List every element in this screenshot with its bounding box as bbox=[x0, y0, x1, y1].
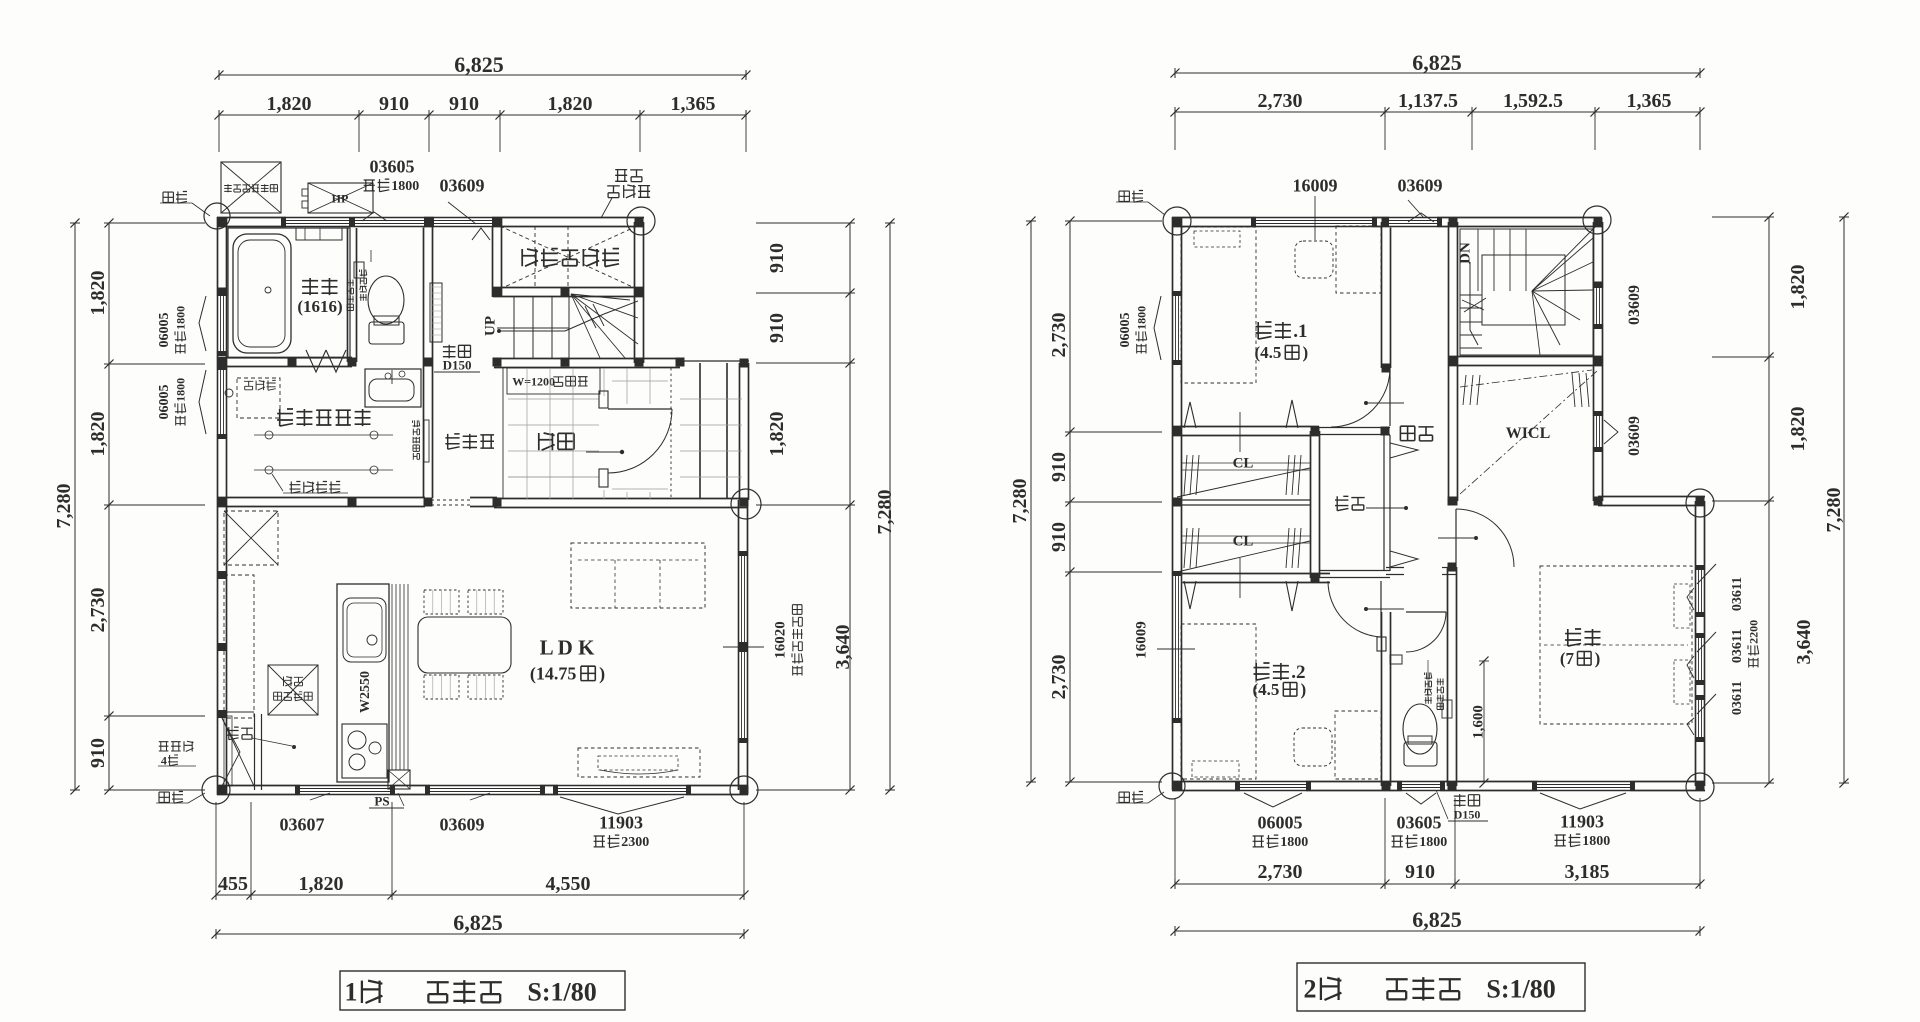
svg-text:1800: 1800 bbox=[1134, 306, 1148, 330]
svg-text:D150: D150 bbox=[443, 358, 472, 373]
svg-text:1800: 1800 bbox=[1419, 835, 1447, 850]
svg-text:(4.5: (4.5 bbox=[1252, 680, 1279, 699]
svg-text:1,820: 1,820 bbox=[87, 271, 109, 316]
svg-text:910: 910 bbox=[449, 93, 479, 115]
svg-text:DN: DN bbox=[1457, 242, 1473, 264]
svg-text:S:1/80: S:1/80 bbox=[1486, 974, 1555, 1003]
svg-text:03609: 03609 bbox=[440, 176, 485, 196]
svg-text:1,592.5: 1,592.5 bbox=[1503, 90, 1563, 112]
svg-text:): ) bbox=[1595, 649, 1601, 668]
svg-text:910: 910 bbox=[766, 243, 788, 273]
svg-text:910: 910 bbox=[1048, 522, 1070, 552]
svg-text:): ) bbox=[1302, 343, 1308, 362]
svg-text:S:1/80: S:1/80 bbox=[527, 977, 596, 1006]
svg-text:03609: 03609 bbox=[440, 815, 485, 835]
svg-text:03609: 03609 bbox=[1626, 416, 1643, 456]
svg-text:1: 1 bbox=[345, 977, 358, 1006]
svg-text:1,137.5: 1,137.5 bbox=[1398, 90, 1458, 112]
svg-text:06005: 06005 bbox=[1258, 813, 1303, 833]
svg-text:03611: 03611 bbox=[1730, 629, 1745, 663]
svg-text:4: 4 bbox=[161, 753, 167, 767]
svg-text:(14.75: (14.75 bbox=[530, 664, 577, 685]
svg-text:1,820: 1,820 bbox=[87, 412, 109, 457]
svg-text:16020: 16020 bbox=[772, 621, 788, 659]
svg-text:UP: UP bbox=[482, 316, 498, 336]
svg-text:1,600: 1,600 bbox=[1470, 705, 1486, 739]
svg-text:1800: 1800 bbox=[173, 378, 187, 402]
svg-text:6,825: 6,825 bbox=[1412, 50, 1462, 75]
svg-text:11903: 11903 bbox=[599, 813, 643, 833]
svg-text:2300: 2300 bbox=[621, 835, 649, 850]
svg-text:4,550: 4,550 bbox=[546, 873, 591, 895]
svg-text:1800: 1800 bbox=[173, 306, 187, 330]
svg-text:1,820: 1,820 bbox=[548, 93, 593, 115]
svg-text:3,185: 3,185 bbox=[1565, 861, 1610, 883]
svg-text:2,730: 2,730 bbox=[1048, 655, 1070, 700]
svg-text:6,825: 6,825 bbox=[454, 52, 504, 77]
svg-text:7,280: 7,280 bbox=[1009, 479, 1031, 524]
svg-text:2,730: 2,730 bbox=[87, 588, 109, 633]
svg-text:D150: D150 bbox=[1454, 807, 1481, 821]
svg-text:910: 910 bbox=[1048, 452, 1070, 482]
svg-text:06005: 06005 bbox=[1118, 313, 1133, 348]
svg-text:03605: 03605 bbox=[370, 157, 415, 177]
svg-text:03611: 03611 bbox=[1730, 681, 1745, 715]
svg-text:1,365: 1,365 bbox=[671, 93, 716, 115]
svg-text:(1616): (1616) bbox=[297, 297, 342, 316]
svg-text:7,280: 7,280 bbox=[53, 484, 75, 529]
svg-text:3,640: 3,640 bbox=[832, 625, 854, 670]
svg-text:1,820: 1,820 bbox=[299, 873, 344, 895]
svg-text:910: 910 bbox=[766, 313, 788, 343]
svg-text:2,730: 2,730 bbox=[1258, 90, 1303, 112]
svg-text:11903: 11903 bbox=[1560, 812, 1604, 832]
svg-text:6,825: 6,825 bbox=[1412, 907, 1462, 932]
svg-text:910: 910 bbox=[1405, 861, 1435, 883]
svg-text:CL: CL bbox=[1233, 455, 1254, 471]
svg-text:1800: 1800 bbox=[1582, 834, 1610, 849]
svg-text:3,640: 3,640 bbox=[1793, 620, 1815, 665]
svg-text:2: 2 bbox=[1304, 974, 1317, 1003]
svg-text:06005: 06005 bbox=[157, 313, 172, 348]
svg-text:CL: CL bbox=[1233, 533, 1254, 549]
svg-text:(4.5: (4.5 bbox=[1254, 343, 1281, 362]
svg-text:03607: 03607 bbox=[280, 815, 325, 835]
svg-text:HP: HP bbox=[332, 191, 349, 205]
svg-text:2,730: 2,730 bbox=[1258, 861, 1303, 883]
svg-text:7,280: 7,280 bbox=[874, 490, 896, 535]
svg-text:6,825: 6,825 bbox=[453, 910, 503, 935]
svg-text:1,820: 1,820 bbox=[766, 412, 788, 457]
svg-text:(7: (7 bbox=[1560, 649, 1575, 668]
svg-text:W2550: W2550 bbox=[358, 671, 373, 713]
svg-text:PS: PS bbox=[374, 794, 389, 809]
svg-text:): ) bbox=[599, 664, 605, 685]
svg-text:16009: 16009 bbox=[1293, 176, 1338, 196]
svg-text:L D K: L D K bbox=[540, 636, 596, 660]
svg-text:1,820: 1,820 bbox=[1787, 407, 1809, 452]
svg-text:910: 910 bbox=[87, 738, 109, 768]
svg-text:16009: 16009 bbox=[1133, 621, 1149, 659]
svg-text:2200: 2200 bbox=[1746, 620, 1760, 644]
svg-text:2,730: 2,730 bbox=[1048, 313, 1070, 358]
svg-text:03605: 03605 bbox=[1397, 813, 1442, 833]
svg-text:455: 455 bbox=[218, 873, 248, 895]
svg-text:03609: 03609 bbox=[1626, 285, 1643, 325]
svg-text:910: 910 bbox=[379, 93, 409, 115]
svg-text:1,820: 1,820 bbox=[1787, 265, 1809, 310]
svg-text:): ) bbox=[1300, 680, 1306, 699]
svg-text:1,820: 1,820 bbox=[267, 93, 312, 115]
svg-text:7,280: 7,280 bbox=[1823, 488, 1845, 533]
svg-text:.1: .1 bbox=[1293, 321, 1307, 342]
svg-text:03611: 03611 bbox=[1730, 577, 1745, 611]
svg-text:1800: 1800 bbox=[1280, 835, 1308, 850]
svg-text:03609: 03609 bbox=[1398, 176, 1443, 196]
svg-text:1800: 1800 bbox=[391, 179, 419, 194]
svg-text:1,365: 1,365 bbox=[1627, 90, 1672, 112]
svg-text:06005: 06005 bbox=[157, 385, 172, 420]
svg-text:W=1200: W=1200 bbox=[512, 374, 555, 388]
